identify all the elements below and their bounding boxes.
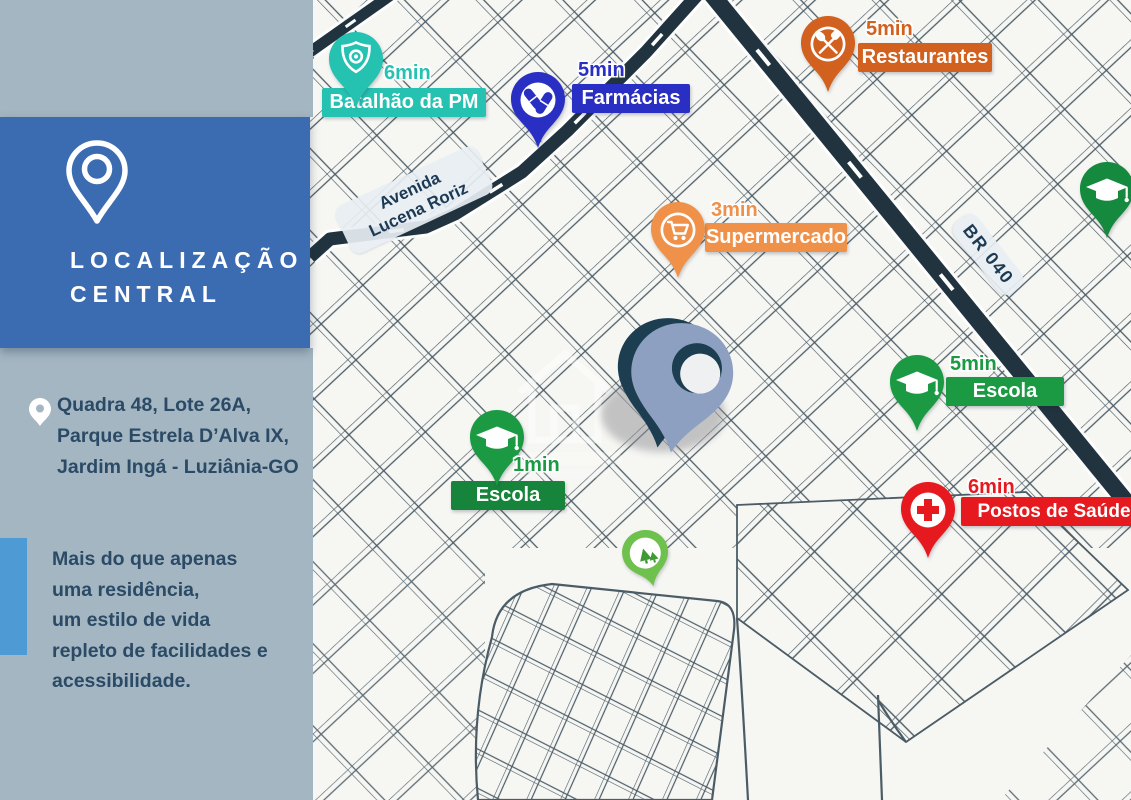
location-infographic: Avenida Lucena Roriz BR 040 Batalhão da …	[0, 0, 1131, 800]
pills-icon	[508, 70, 568, 154]
title-line2: CENTRAL	[70, 277, 303, 311]
sidebar-top-strip	[0, 0, 313, 117]
tagline-line4: repleto de facilidades e	[52, 636, 304, 667]
farmacias-banner: Farmácias	[572, 84, 690, 113]
utensils-icon	[798, 14, 858, 98]
accent-bar	[0, 538, 27, 655]
farmacias-time: 5min	[578, 59, 625, 82]
address-line1: Quadra 48, Lote 26A,	[57, 390, 309, 421]
address-line2: Parque Estrela D’Alva IX,	[57, 421, 309, 452]
title-panel: LOCALIZAÇÃO CENTRAL	[0, 117, 310, 348]
title-line1: LOCALIZAÇÃO	[70, 243, 303, 277]
escola-right-time: 5min	[950, 353, 997, 376]
tagline-line5: acessibilidade.	[52, 666, 304, 697]
tagline-line1: Mais do que apenas	[52, 544, 304, 575]
address-line3: Jardim Ingá - Luziânia-GO	[57, 452, 309, 483]
property-address: Quadra 48, Lote 26A, Parque Estrela D’Al…	[57, 390, 309, 483]
postos-banner: Postos de Saúde	[961, 497, 1131, 526]
street-grid-bottom-left	[300, 548, 485, 800]
graduation-cap-icon	[467, 408, 527, 492]
supermercado-banner: Supermercado	[705, 223, 847, 252]
shopping-cart-icon	[648, 200, 708, 284]
restaurantes-banner: Restaurantes	[858, 43, 992, 72]
info-sidebar: LOCALIZAÇÃO CENTRAL Quadra 48, Lote 26A,…	[0, 0, 313, 800]
graduation-cap-icon	[1077, 160, 1131, 244]
escola-left-time: 1min	[513, 454, 560, 477]
property-location-pin	[585, 318, 785, 478]
address-pin-icon	[28, 397, 52, 427]
graduation-cap-icon	[887, 353, 947, 437]
batalhao-time: 6min	[384, 62, 431, 85]
tagline: Mais do que apenas uma residência, um es…	[52, 544, 304, 697]
medical-cross-icon	[898, 480, 958, 564]
escola-right-banner: Escola	[946, 377, 1064, 406]
tagline-line3: um estilo de vida	[52, 605, 304, 636]
location-pin-icon	[64, 139, 130, 227]
park-tree-icon	[618, 528, 674, 590]
police-badge-icon	[326, 30, 386, 114]
tagline-line2: uma residência,	[52, 575, 304, 606]
restaurantes-time: 5min	[866, 18, 913, 41]
supermercado-time: 3min	[711, 199, 758, 222]
postos-time: 6min	[968, 476, 1015, 499]
page-title: LOCALIZAÇÃO CENTRAL	[70, 243, 303, 311]
